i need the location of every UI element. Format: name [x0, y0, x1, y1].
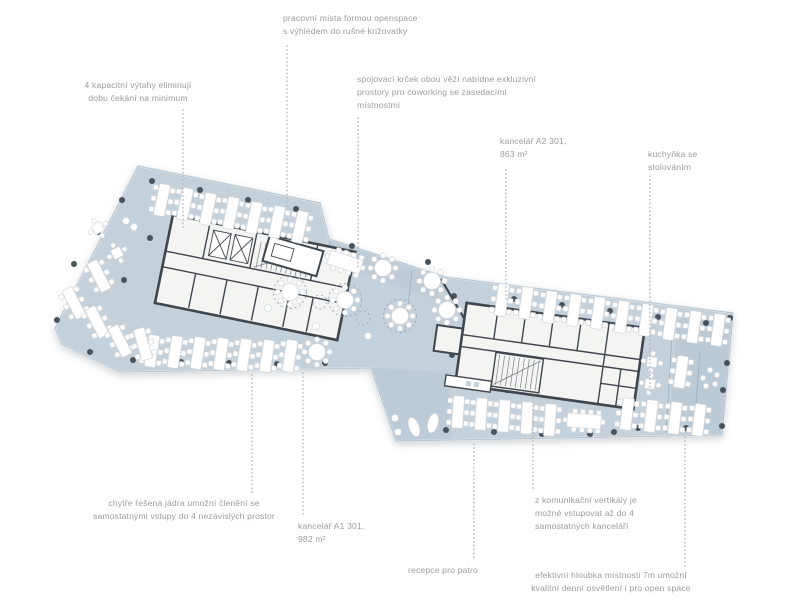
column	[425, 259, 431, 265]
column	[121, 277, 127, 283]
desk	[681, 310, 707, 345]
annotation-line: 4 kapacitní výtahy eliminují	[58, 79, 218, 92]
annotation-jadra: chytře řešená jádra umožní členění se sa…	[84, 497, 284, 523]
desk	[538, 403, 562, 436]
annotation-line: místnostmi	[357, 99, 536, 112]
column	[349, 243, 355, 249]
desk	[515, 401, 539, 434]
annotation-line: z komunikační vertikály je	[535, 494, 637, 507]
desk	[492, 399, 516, 432]
annotation-vytahy: 4 kapacitní výtahy eliminují dobu čekání…	[58, 79, 218, 105]
desk	[489, 283, 515, 318]
desk	[537, 290, 563, 325]
rtable	[368, 253, 398, 283]
column	[87, 349, 93, 355]
annotation-line: kvalitní denní osvětlení i pro open spac…	[511, 582, 711, 595]
desk	[638, 399, 664, 433]
annotation-line: dobu čekání na minimum	[58, 92, 218, 105]
column	[491, 429, 497, 435]
plant	[313, 323, 320, 330]
chair	[712, 381, 717, 386]
column	[703, 320, 709, 326]
desk	[633, 303, 659, 338]
desk	[614, 397, 640, 431]
desk	[513, 286, 539, 321]
column	[611, 429, 617, 435]
annotation-line: samostatných kanceláří	[535, 520, 637, 533]
annotation-line: chytře řešená jádra umožní členění se	[84, 497, 284, 510]
plant	[395, 429, 402, 436]
annotation-recepce: recepce pro patro	[408, 564, 478, 577]
column	[443, 427, 449, 433]
rtable	[385, 301, 415, 331]
desk	[585, 296, 611, 331]
column	[724, 360, 730, 366]
chair	[700, 375, 705, 380]
chair	[703, 383, 708, 388]
annotation-line: samostatnými vstupy do 4 nezávislých pro…	[84, 510, 284, 523]
desk	[208, 336, 235, 371]
chair	[714, 372, 719, 377]
rtable	[417, 266, 447, 296]
desk	[657, 307, 683, 342]
annotation-kancelar-a1: kancelář A1 301, 982 m²	[298, 520, 364, 546]
column	[149, 178, 155, 184]
annotation-vertikala: z komunikační vertikály je možné vstupov…	[535, 494, 637, 533]
chair	[707, 367, 712, 372]
annotation-line: kancelář A1 301,	[298, 520, 364, 533]
rtable	[330, 285, 360, 315]
column	[719, 423, 725, 429]
annotation-line: stolováním	[648, 161, 697, 174]
annotation-krcek: spojovací krček obou věží nabídne exkluz…	[357, 73, 536, 112]
desk	[469, 397, 493, 430]
column	[54, 317, 60, 323]
annotation-openspace: pracovní místa formou openspace s výhled…	[283, 12, 418, 38]
annotation-line: 982 m²	[298, 533, 364, 546]
plant	[265, 305, 272, 312]
annotation-line: pracovní místa formou openspace	[283, 12, 418, 25]
desk	[231, 337, 258, 372]
column	[720, 387, 726, 393]
desk	[277, 338, 304, 373]
column	[147, 235, 153, 241]
annotation-kancelar-a2: kancelář A2 301, 863 m²	[500, 135, 566, 161]
plant	[131, 224, 138, 231]
desk	[609, 300, 635, 335]
column	[245, 197, 251, 203]
desk	[686, 403, 712, 437]
column	[71, 261, 77, 267]
rtable	[302, 337, 332, 367]
annotation-line: recepce pro patro	[408, 564, 478, 577]
annotation-line: efektivní hloubka místnosti 7m umožní	[511, 569, 711, 582]
annotation-kuchynka: kuchyňka se stolováním	[648, 148, 697, 174]
rtable	[432, 295, 462, 325]
column	[197, 187, 203, 193]
annotation-line: možné vstupovat až do 4	[535, 507, 637, 520]
desk	[185, 335, 212, 370]
annotation-line: kancelář A2 301,	[500, 135, 566, 148]
floor-plan-sheet: pracovní místa formou openspace s výhled…	[0, 0, 800, 609]
desk	[162, 334, 189, 369]
annotation-line: s výhledem do rušné križovatky	[283, 25, 418, 38]
desk	[668, 355, 694, 390]
plant	[123, 218, 130, 225]
rtable	[275, 277, 305, 307]
annotation-line: kuchyňka se	[648, 148, 697, 161]
annotation-line: spojovací krček obou věží nabídne exkluz…	[357, 73, 536, 86]
annotation-line: prostory pro coworking se zasedacími	[357, 86, 536, 99]
annotation-line: 863 m²	[500, 148, 566, 161]
plant	[392, 415, 399, 422]
desk	[254, 338, 281, 373]
column	[119, 197, 125, 203]
desk	[561, 293, 587, 328]
desk	[705, 313, 731, 348]
column	[130, 357, 136, 363]
desk	[446, 395, 470, 428]
annotation-hloubka: efektivní hloubka místnosti 7m umožní kv…	[511, 569, 711, 595]
plant	[365, 333, 372, 340]
desk	[662, 401, 688, 435]
